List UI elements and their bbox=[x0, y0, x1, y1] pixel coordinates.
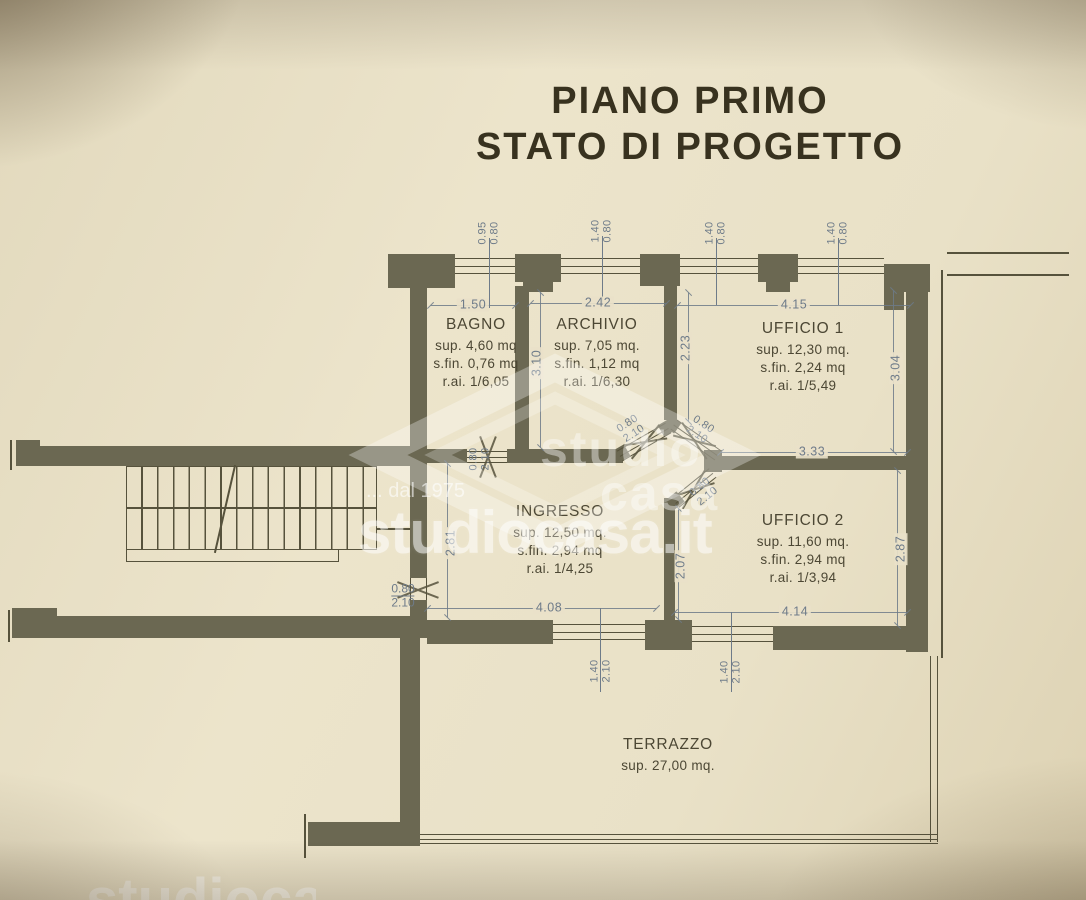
opening-size-label: 1.40 0.80 bbox=[705, 221, 728, 244]
floorplan-photo: PIANO PRIMO STATO DI PROGETTO bbox=[0, 0, 1086, 900]
wall-segment bbox=[773, 626, 908, 650]
parapet bbox=[420, 834, 938, 844]
dimension-label: 2.07 bbox=[675, 550, 688, 582]
wall-segment bbox=[427, 449, 467, 463]
wall-segment bbox=[308, 822, 420, 846]
room-label-bagno: BAGNO sup. 4,60 mq s.fin. 0,76 mq r.ai. … bbox=[433, 316, 518, 391]
room-label-ufficio2: UFFICIO 2 sup. 11,60 mq. s.fin. 2,94 mq … bbox=[757, 512, 850, 587]
wall-cut-tick bbox=[304, 814, 306, 858]
dimension-label: 2.23 bbox=[680, 332, 693, 364]
french-door-opening bbox=[553, 624, 645, 640]
wall-segment bbox=[410, 286, 427, 578]
wall-segment bbox=[906, 290, 928, 652]
french-door-opening bbox=[692, 626, 773, 642]
wall-segment bbox=[427, 620, 553, 644]
parapet bbox=[930, 656, 938, 842]
window-opening bbox=[561, 258, 640, 274]
dimension-label: 3.33 bbox=[796, 446, 828, 459]
opening-size-label: 0.80 2.10 bbox=[469, 447, 492, 470]
opening-size-label: 1.40 2.10 bbox=[720, 660, 743, 683]
witness-line bbox=[716, 238, 717, 305]
window-opening bbox=[798, 258, 884, 274]
stairs-direction-line bbox=[214, 465, 236, 553]
dimension-label: 2.87 bbox=[895, 533, 908, 565]
wall-pilaster bbox=[645, 620, 692, 650]
opening-size-label: 1.40 0.80 bbox=[591, 219, 614, 242]
railing-line bbox=[377, 528, 410, 530]
dimension-label: 2.42 bbox=[582, 297, 614, 310]
dimension-label: 2.81 bbox=[445, 527, 458, 559]
window-opening bbox=[455, 258, 515, 274]
watermark-domain-partial: studiocasa.it bbox=[86, 866, 316, 900]
witness-line bbox=[489, 238, 490, 308]
boundary-line bbox=[947, 274, 1069, 276]
dimension-label: 1.50 bbox=[457, 299, 489, 312]
dimension-label: 4.08 bbox=[533, 602, 565, 615]
wall-corner bbox=[12, 608, 57, 618]
dimension-label: 4.14 bbox=[779, 606, 811, 619]
room-label-archivio: ARCHIVIO sup. 7,05 mq. s.fin. 1,12 mq r.… bbox=[554, 316, 640, 391]
room-label-ufficio1: UFFICIO 1 sup. 12,30 mq. s.fin. 2,24 mq … bbox=[756, 320, 850, 395]
stairs-midline bbox=[127, 507, 376, 509]
wall-segment bbox=[12, 616, 427, 638]
page-title: PIANO PRIMO STATO DI PROGETTO bbox=[390, 78, 990, 170]
wall-corner bbox=[16, 440, 40, 466]
wall-segment bbox=[400, 636, 420, 846]
wall-segment bbox=[388, 254, 455, 288]
dimension-label: 3.04 bbox=[890, 352, 903, 384]
boundary-line bbox=[941, 270, 943, 658]
boundary-line bbox=[947, 252, 1069, 254]
dimension-label: 4.15 bbox=[778, 299, 810, 312]
room-label-terrazzo: TERRAZZO sup. 27,00 mq. bbox=[621, 736, 715, 775]
title-line-1: PIANO PRIMO bbox=[390, 78, 990, 124]
opening-size-label: 0.80 2.10 bbox=[391, 583, 414, 610]
wall-pilaster bbox=[758, 254, 798, 282]
room-label-ingresso: INGRESSO sup. 12,50 mq. s.fin. 2,94 mq r… bbox=[513, 503, 607, 578]
window-opening bbox=[680, 258, 758, 274]
opening-size-label: 0.95 0.80 bbox=[478, 221, 501, 244]
wall-segment bbox=[16, 446, 412, 466]
stairs bbox=[126, 466, 377, 550]
opening-size-label: 1.40 0.80 bbox=[827, 221, 850, 244]
opening-size-label: 1.40 2.10 bbox=[590, 659, 613, 682]
stairs-lower-edge bbox=[126, 550, 339, 562]
wall-pilaster bbox=[640, 254, 680, 286]
wall-cut-tick bbox=[8, 610, 10, 642]
wall-pilaster bbox=[766, 280, 790, 292]
wall-segment bbox=[507, 449, 623, 463]
witness-line bbox=[838, 238, 839, 305]
wall-cut-tick bbox=[10, 440, 12, 470]
title-line-2: STATO DI PROGETTO bbox=[390, 124, 990, 170]
witness-line bbox=[602, 236, 603, 303]
dimension-label: 3.10 bbox=[531, 347, 544, 379]
wall-pilaster bbox=[515, 254, 561, 282]
